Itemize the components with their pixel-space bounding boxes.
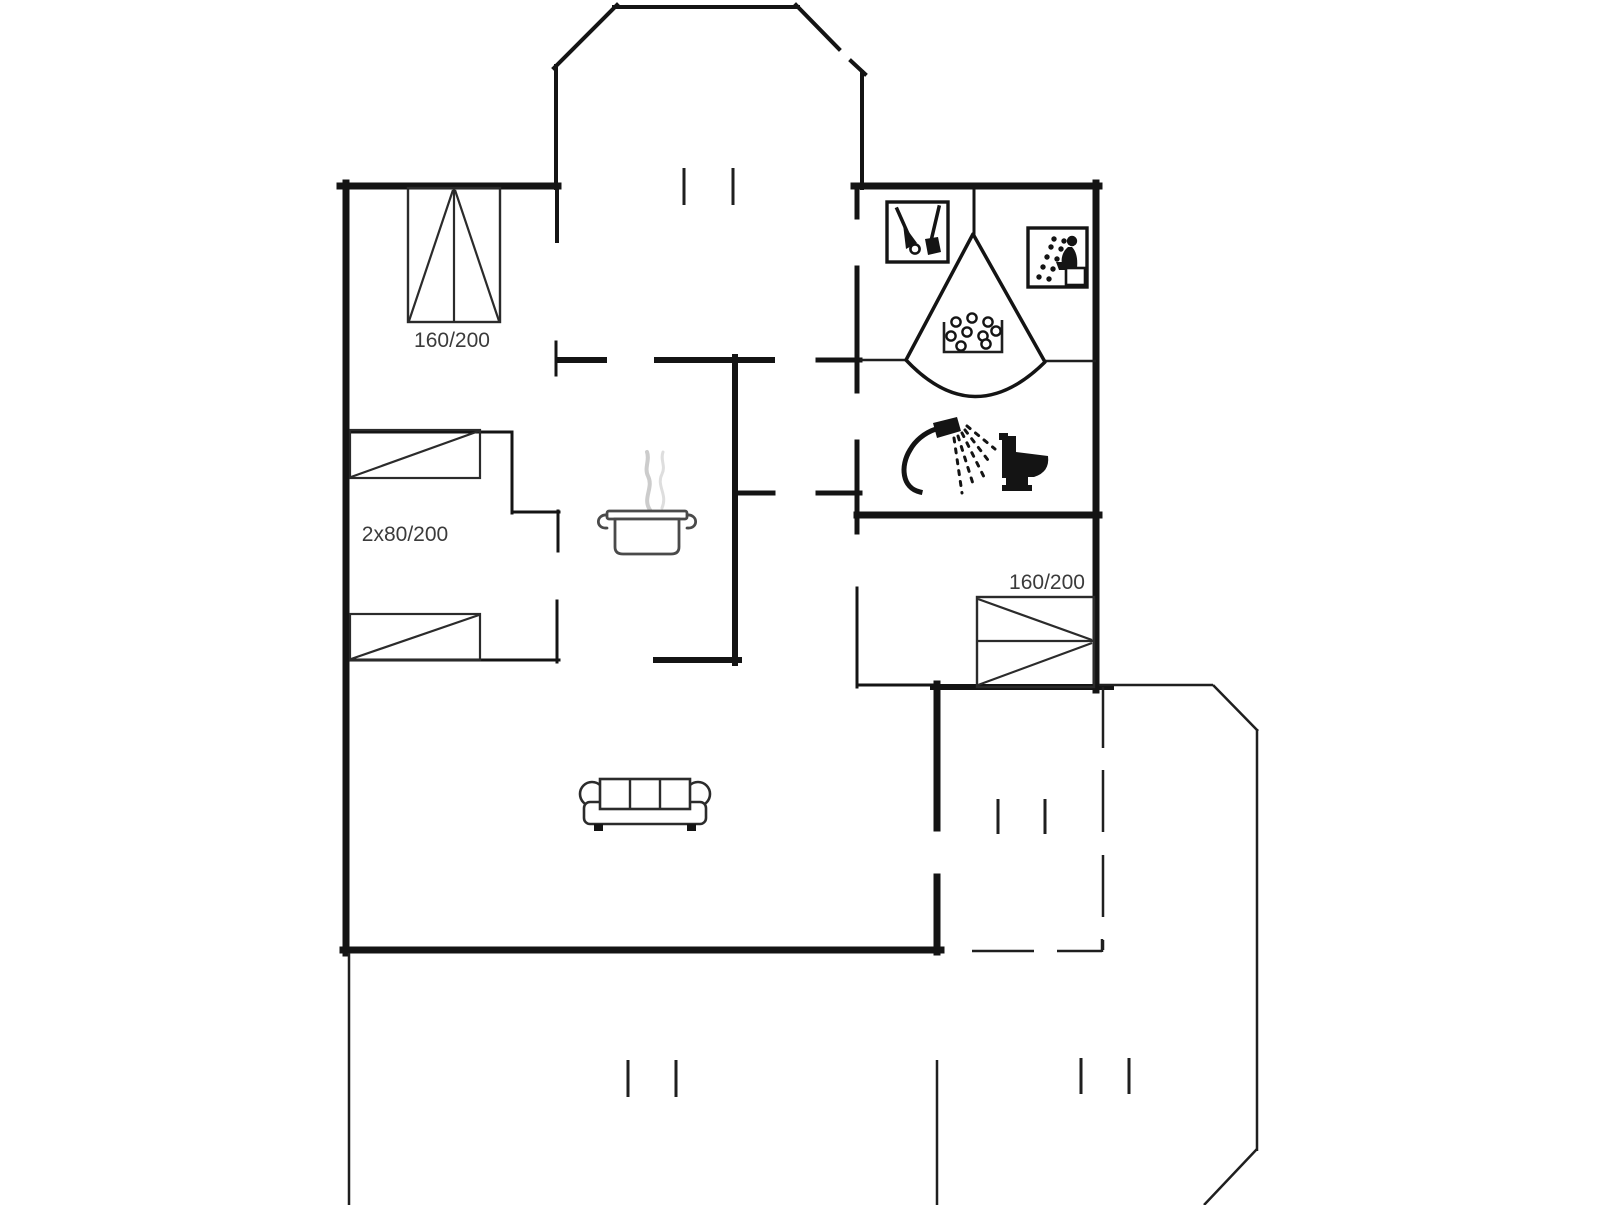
person-head — [1067, 236, 1077, 246]
jet-dot — [956, 341, 965, 350]
steam-dot — [1036, 274, 1041, 279]
steam-dot — [1051, 236, 1056, 241]
floor-plan-drawing: 160/200 2x80/200 160/200 — [0, 0, 1606, 1205]
shower-spray — [954, 426, 995, 493]
window-opening-marks — [628, 168, 1129, 1097]
double-bed-right — [977, 597, 1094, 687]
entrance-bay-walls — [554, 5, 865, 188]
cooking-pot-icon — [598, 452, 695, 554]
steam-dot — [1058, 246, 1063, 251]
bed-diagonal — [409, 190, 453, 321]
toilet-bowl — [1016, 452, 1048, 477]
toilet-tank — [1002, 436, 1016, 478]
terrace-line — [1204, 1149, 1257, 1205]
double-bed-top-left — [408, 188, 500, 322]
bed-size-label: 2x80/200 — [362, 523, 448, 546]
floor-plan: 160/200 2x80/200 160/200 — [0, 0, 1606, 1205]
jet-dot — [981, 339, 990, 348]
steam-wisp — [660, 452, 663, 508]
jet-dot — [983, 317, 992, 326]
cleaning-equipment-icon — [887, 202, 948, 262]
steam-dot — [1040, 264, 1045, 269]
sofa-foot — [594, 824, 603, 831]
bed-size-label: 160/200 — [414, 329, 490, 352]
sofa-icon — [580, 779, 710, 831]
jet-dot — [962, 327, 971, 336]
pot-body — [615, 519, 679, 554]
sauna-bench — [1066, 268, 1085, 285]
steam-dot — [1054, 256, 1059, 261]
right-bedroom-walls — [857, 588, 1111, 952]
terrace-line — [1213, 685, 1258, 731]
bed-size-label: 160/200 — [1009, 571, 1085, 594]
steam-dot — [1044, 254, 1049, 259]
toilet-base — [1002, 485, 1032, 491]
jet-dot — [967, 313, 976, 322]
shower-head — [933, 417, 961, 438]
toilet-icon — [999, 433, 1048, 491]
shower-hose — [904, 429, 936, 492]
sauna-icon — [1028, 228, 1087, 287]
bed-diagonal — [978, 643, 1092, 685]
sofa-back — [600, 779, 690, 809]
interior-walls — [556, 186, 773, 663]
wall-segment — [554, 5, 617, 68]
steam-dot — [1061, 238, 1066, 243]
steam-dot — [1046, 276, 1051, 281]
jet-dot — [951, 317, 960, 326]
bed-diagonal — [978, 599, 1092, 640]
shower-icon — [904, 417, 995, 493]
bed-diagonal — [351, 615, 479, 659]
steam-wisp — [647, 452, 650, 510]
steam-dot — [1048, 244, 1053, 249]
sofa-foot — [687, 824, 696, 831]
wall-segment — [796, 5, 839, 49]
steam-dot — [1050, 266, 1055, 271]
vacuum-wheel — [910, 244, 919, 253]
jet-dot — [946, 331, 955, 340]
terrace-boundary-lines — [349, 685, 1258, 1205]
toilet-pedestal — [1006, 477, 1028, 486]
bed-diagonal — [455, 190, 499, 321]
jet-dot — [991, 326, 1000, 335]
bed-diagonal — [351, 431, 479, 477]
